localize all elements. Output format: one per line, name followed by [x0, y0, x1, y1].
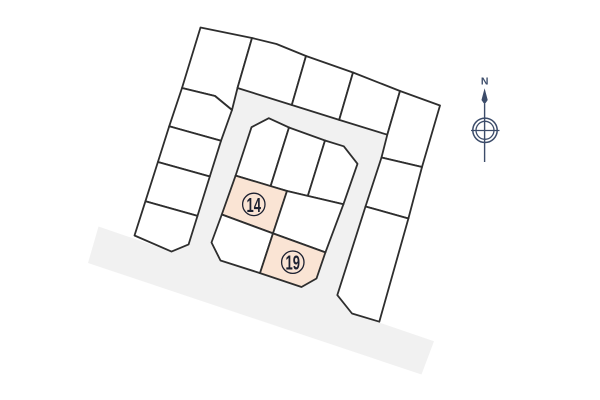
svg-text:14: 14: [247, 194, 262, 217]
svg-text:19: 19: [286, 252, 301, 275]
svg-text:N: N: [481, 76, 489, 88]
